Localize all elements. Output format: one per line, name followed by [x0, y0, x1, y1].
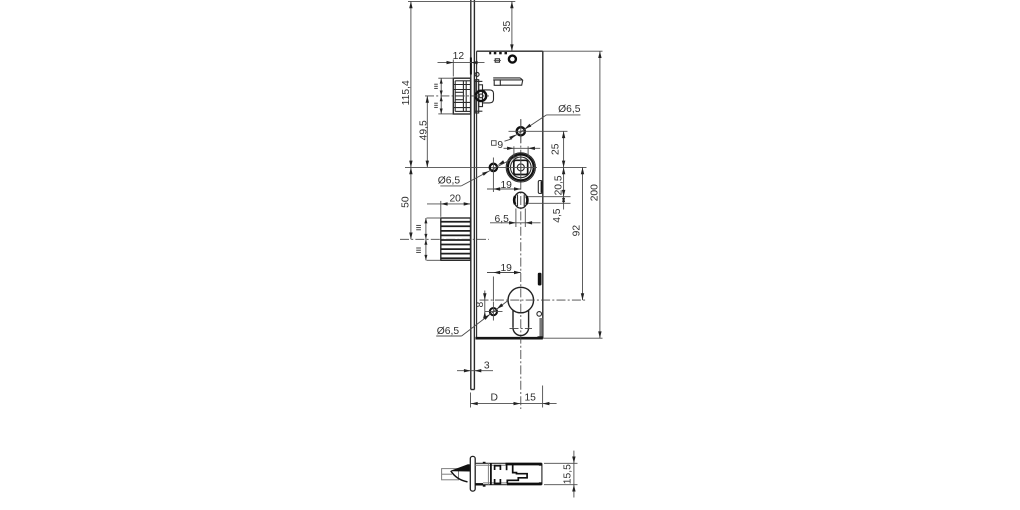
svg-text:15,5: 15,5: [563, 464, 574, 484]
svg-text:20: 20: [449, 194, 461, 205]
svg-text:Ø6,5: Ø6,5: [558, 104, 581, 115]
svg-text:50: 50: [401, 196, 412, 208]
svg-text:6,5: 6,5: [495, 214, 510, 225]
svg-text:9: 9: [497, 140, 503, 151]
svg-text:35: 35: [502, 21, 513, 33]
svg-text:49,5: 49,5: [419, 120, 430, 140]
svg-text:15: 15: [524, 392, 536, 403]
svg-text:12: 12: [453, 51, 465, 62]
svg-text:Ø6,5: Ø6,5: [438, 175, 461, 186]
svg-text:D: D: [490, 393, 497, 404]
svg-text:92: 92: [572, 225, 583, 237]
svg-text:4,5: 4,5: [552, 208, 563, 223]
svg-text:115,4: 115,4: [401, 80, 412, 105]
svg-text:19: 19: [500, 180, 512, 191]
svg-text:19: 19: [500, 263, 512, 274]
svg-text:8: 8: [475, 301, 486, 307]
svg-text:200: 200: [590, 184, 601, 201]
svg-text:Ø6,5: Ø6,5: [437, 326, 460, 337]
svg-text:25: 25: [551, 143, 562, 155]
svg-text:20,5: 20,5: [553, 175, 564, 195]
svg-text:3: 3: [484, 360, 490, 371]
